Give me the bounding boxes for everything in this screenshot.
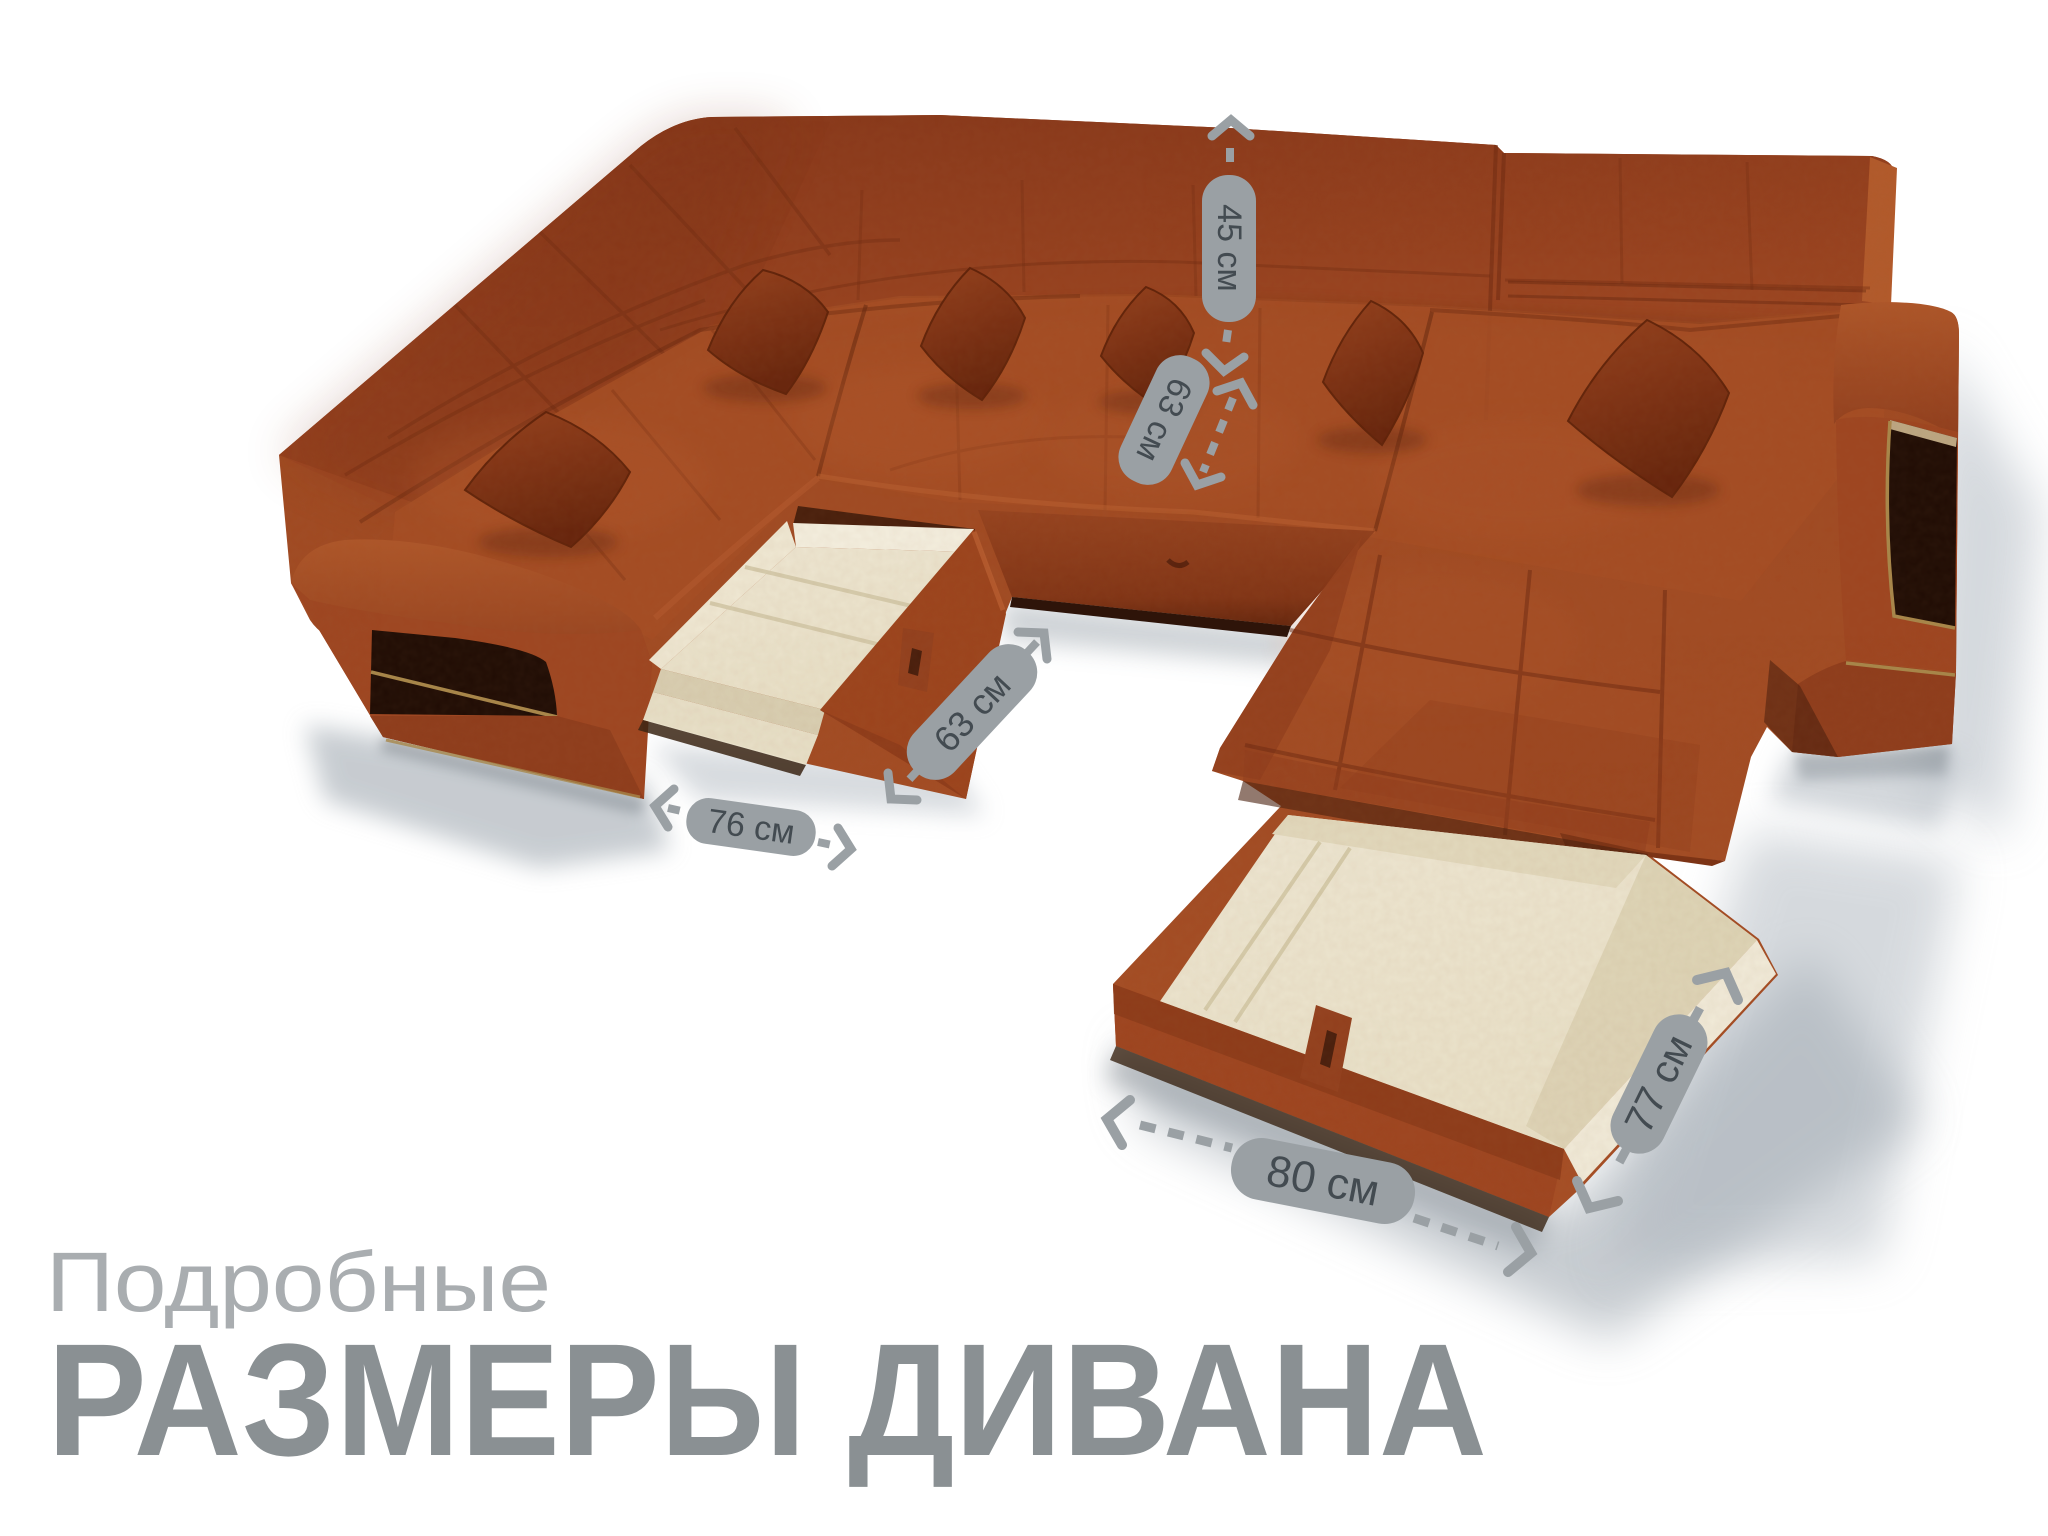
svg-text:РАЗМЕРЫ ДИВАНА: РАЗМЕРЫ ДИВАНА bbox=[47, 1310, 1487, 1489]
svg-text:45 см: 45 см bbox=[1210, 204, 1248, 292]
